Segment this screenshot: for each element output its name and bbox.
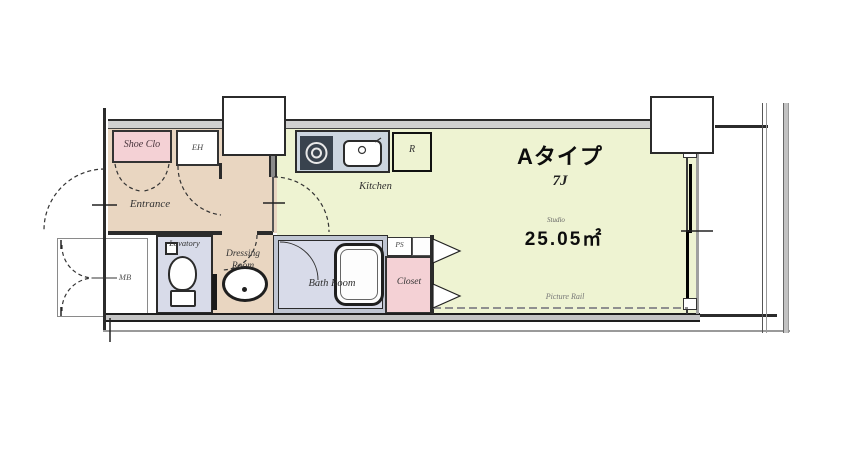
front-door-swing-arc xyxy=(44,169,105,230)
plan-linework xyxy=(0,0,855,453)
dressing-room-door-arc xyxy=(222,235,257,270)
closet-folding-door-icon xyxy=(433,284,460,308)
entrance-hall-door-arc xyxy=(178,166,221,215)
sink-faucet-icon xyxy=(375,138,381,142)
closet-folding-door-icon xyxy=(433,239,460,263)
shoe-closet-door-arc-right xyxy=(144,164,169,191)
shoe-closet-door-arc-left xyxy=(115,164,140,191)
meter-box-door-arc-top xyxy=(62,245,92,278)
sink-drain-icon xyxy=(359,147,366,154)
stove-burner-ring-inner xyxy=(312,149,321,158)
bathroom-door-arc xyxy=(280,242,318,280)
stove-burner-ring-outer xyxy=(307,143,327,163)
kitchen-door-swing-arc xyxy=(274,177,329,232)
floor-plan: Shoe Clo EH Kitchen R Aタイプ 7J Studio 25.… xyxy=(0,0,855,453)
meter-box-door-arc-bottom xyxy=(62,278,92,311)
